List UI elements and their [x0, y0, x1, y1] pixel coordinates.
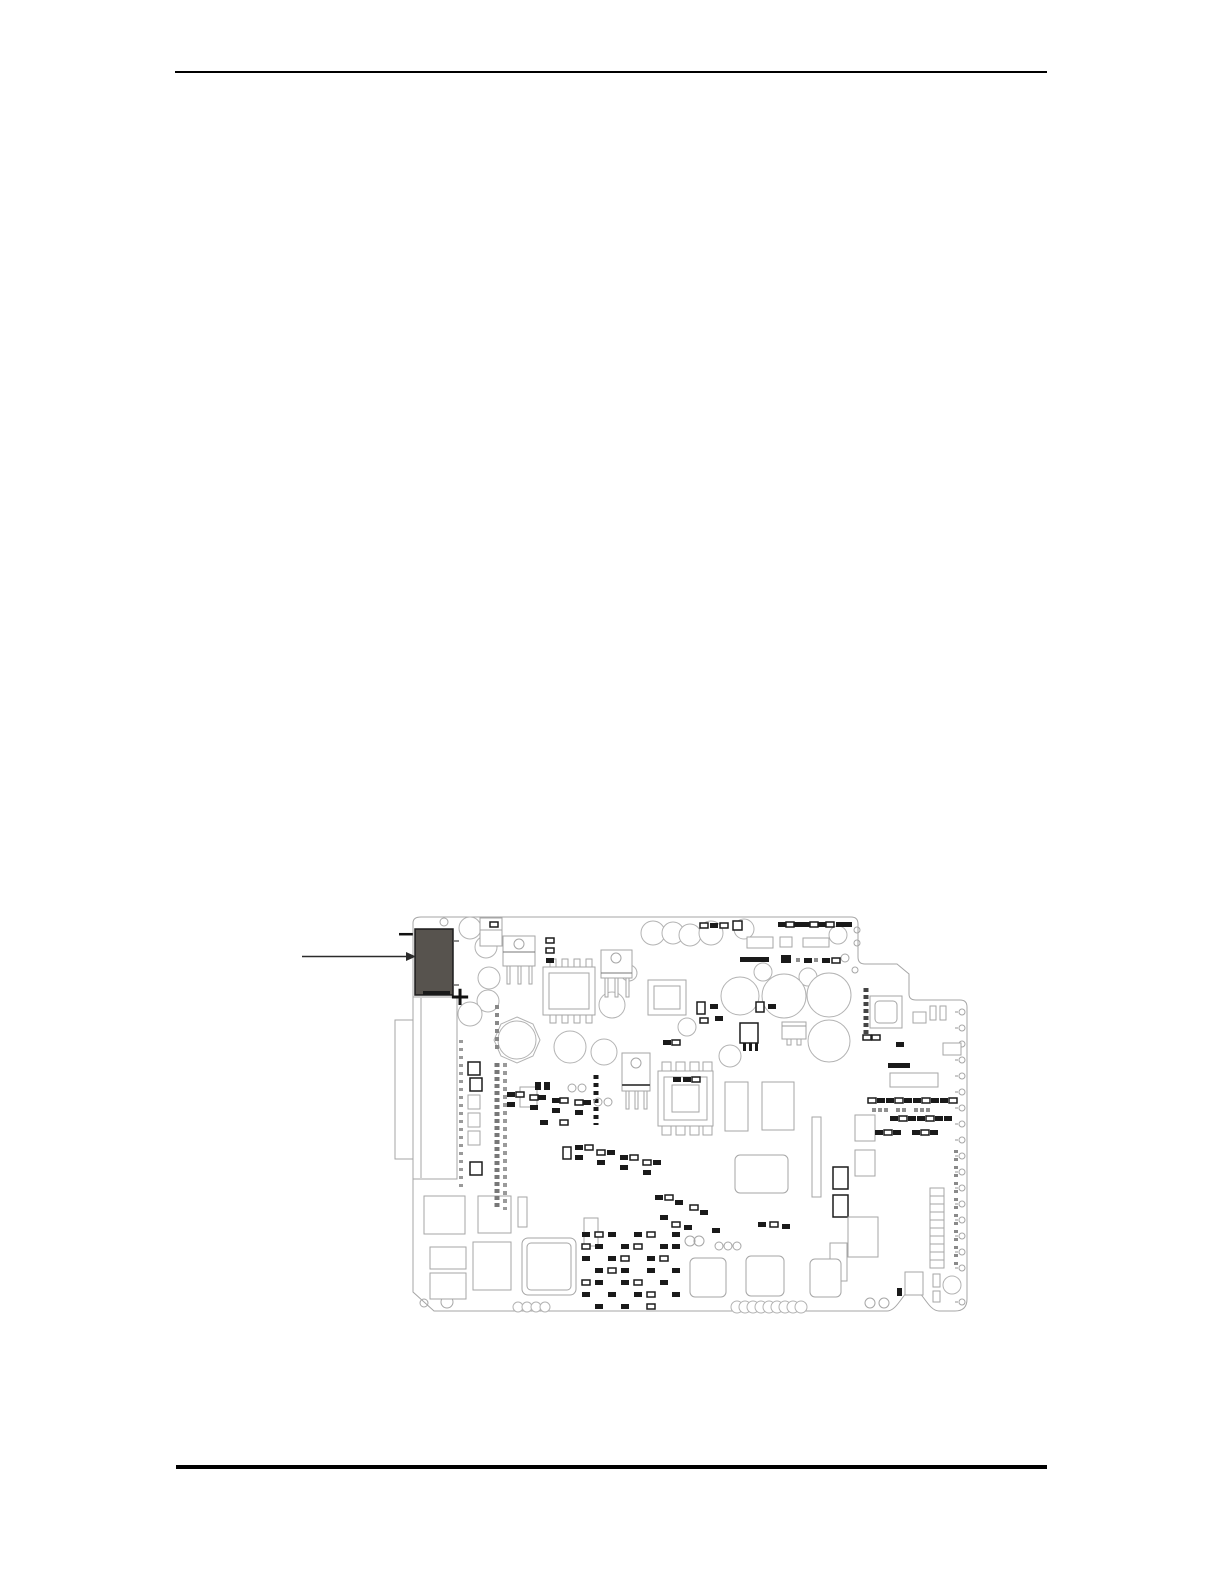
- to220-b: [601, 950, 632, 997]
- highlighted-connector: [415, 929, 453, 995]
- callout-arrow: [302, 952, 416, 961]
- polarity-plus-label: +: [449, 982, 471, 1012]
- to220-a: [503, 936, 535, 984]
- qfp-bottom-left: [522, 1238, 576, 1295]
- transformer-a: [543, 959, 595, 1023]
- pcb-figure: − +: [0, 0, 1224, 1584]
- to220-c: [622, 1053, 650, 1109]
- qfp-top-right: [870, 996, 902, 1028]
- polarity-minus-label: −: [397, 922, 415, 947]
- edge-connector: [395, 997, 465, 1234]
- transformer-c: [658, 1062, 713, 1135]
- transformer-b: [648, 980, 686, 1015]
- document-page: − +: [0, 0, 1224, 1584]
- pin-connector-right: [930, 1188, 944, 1268]
